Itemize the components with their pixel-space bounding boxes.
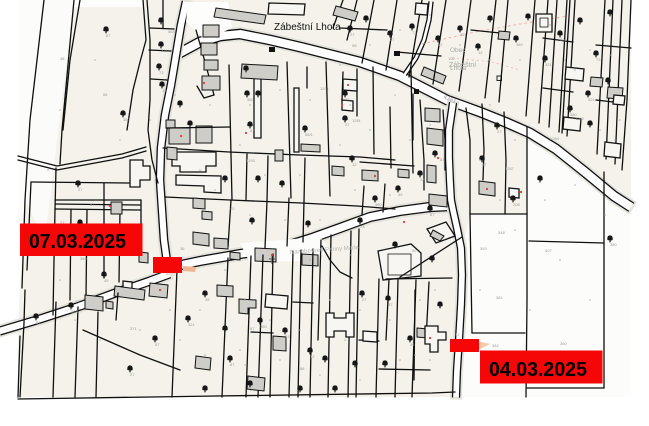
svg-text:27: 27 — [345, 122, 350, 127]
svg-text:361: 361 — [496, 295, 503, 300]
svg-text:04.03.2025: 04.03.2025 — [489, 359, 587, 381]
svg-text:380: 380 — [516, 42, 523, 47]
svg-text:45: 45 — [398, 192, 403, 197]
svg-text:87: 87 — [36, 320, 41, 325]
svg-text:1267: 1267 — [505, 166, 515, 171]
svg-text:87: 87 — [106, 33, 111, 38]
svg-text:307: 307 — [545, 248, 552, 253]
svg-text:87: 87 — [440, 157, 445, 162]
svg-text:321: 321 — [588, 97, 595, 102]
svg-text:45: 45 — [410, 342, 415, 347]
svg-text:380: 380 — [123, 117, 130, 122]
svg-text:73: 73 — [285, 334, 290, 339]
svg-text:36: 36 — [180, 246, 185, 251]
svg-text:Obec: Obec — [450, 47, 466, 54]
svg-text:87: 87 — [388, 302, 393, 307]
svg-text:12: 12 — [420, 177, 425, 182]
svg-text:56/1: 56/1 — [168, 29, 177, 34]
svg-text:45: 45 — [205, 297, 210, 302]
svg-text:98: 98 — [352, 43, 357, 48]
svg-text:07.03.2025: 07.03.2025 — [29, 231, 126, 253]
svg-text:12: 12 — [310, 354, 315, 359]
svg-text:87: 87 — [482, 162, 487, 167]
svg-text:380: 380 — [570, 112, 577, 117]
svg-text:87: 87 — [230, 362, 235, 367]
svg-text:87: 87 — [430, 212, 435, 217]
svg-text:27: 27 — [250, 387, 255, 392]
svg-text:68: 68 — [103, 92, 108, 97]
svg-text:45: 45 — [104, 278, 109, 283]
svg-text:380: 380 — [375, 202, 382, 207]
svg-text:208: 208 — [513, 202, 520, 207]
svg-text:12: 12 — [438, 42, 443, 47]
svg-text:353: 353 — [480, 246, 487, 251]
svg-text:73: 73 — [596, 57, 601, 62]
svg-text:27: 27 — [497, 129, 502, 134]
svg-text:73: 73 — [345, 97, 350, 102]
svg-text:88: 88 — [300, 366, 305, 371]
svg-text:48: 48 — [60, 56, 65, 61]
svg-text:360: 360 — [560, 341, 567, 346]
svg-text:27: 27 — [130, 372, 135, 377]
svg-text:12: 12 — [352, 162, 357, 167]
svg-text:362: 362 — [492, 343, 499, 348]
svg-text:87: 87 — [250, 128, 255, 133]
svg-text:380: 380 — [260, 324, 267, 329]
svg-text:1293: 1293 — [246, 158, 256, 163]
svg-text:73: 73 — [360, 224, 365, 229]
svg-text:56/1: 56/1 — [305, 132, 314, 137]
svg-text:369: 369 — [80, 256, 87, 261]
svg-text:380: 380 — [247, 97, 254, 102]
svg-text:380: 380 — [610, 242, 617, 247]
svg-text:12: 12 — [455, 332, 460, 337]
svg-text:1264: 1264 — [550, 136, 560, 141]
svg-text:40: 40 — [230, 206, 235, 211]
svg-text:56/1: 56/1 — [71, 309, 80, 314]
svg-text:12: 12 — [478, 50, 483, 55]
svg-text:27: 27 — [390, 37, 395, 42]
svg-text:208: 208 — [560, 37, 567, 42]
svg-text:Zábeštní Lhota: Zábeštní Lhota — [274, 22, 341, 33]
svg-text:12: 12 — [162, 88, 167, 93]
svg-text:87: 87 — [90, 202, 95, 207]
svg-text:321: 321 — [161, 48, 168, 53]
svg-text:1291: 1291 — [320, 86, 330, 91]
svg-text:87: 87 — [155, 342, 160, 347]
svg-text:73: 73 — [412, 30, 417, 35]
svg-text:321: 321 — [545, 62, 552, 67]
svg-text:27: 27 — [350, 32, 355, 37]
svg-text:45: 45 — [460, 32, 465, 37]
svg-text:73: 73 — [159, 70, 164, 75]
svg-text:102: 102 — [448, 56, 455, 61]
svg-text:27: 27 — [75, 299, 80, 304]
svg-text:27: 27 — [362, 297, 367, 302]
svg-text:52: 52 — [412, 248, 417, 253]
svg-text:1281: 1281 — [352, 118, 362, 123]
svg-text:27: 27 — [78, 187, 83, 192]
svg-text:348: 348 — [498, 230, 505, 235]
svg-text:321: 321 — [188, 322, 195, 327]
svg-text:87: 87 — [250, 326, 255, 331]
svg-text:371: 371 — [130, 326, 137, 331]
svg-text:Lhota: Lhota — [450, 65, 467, 72]
